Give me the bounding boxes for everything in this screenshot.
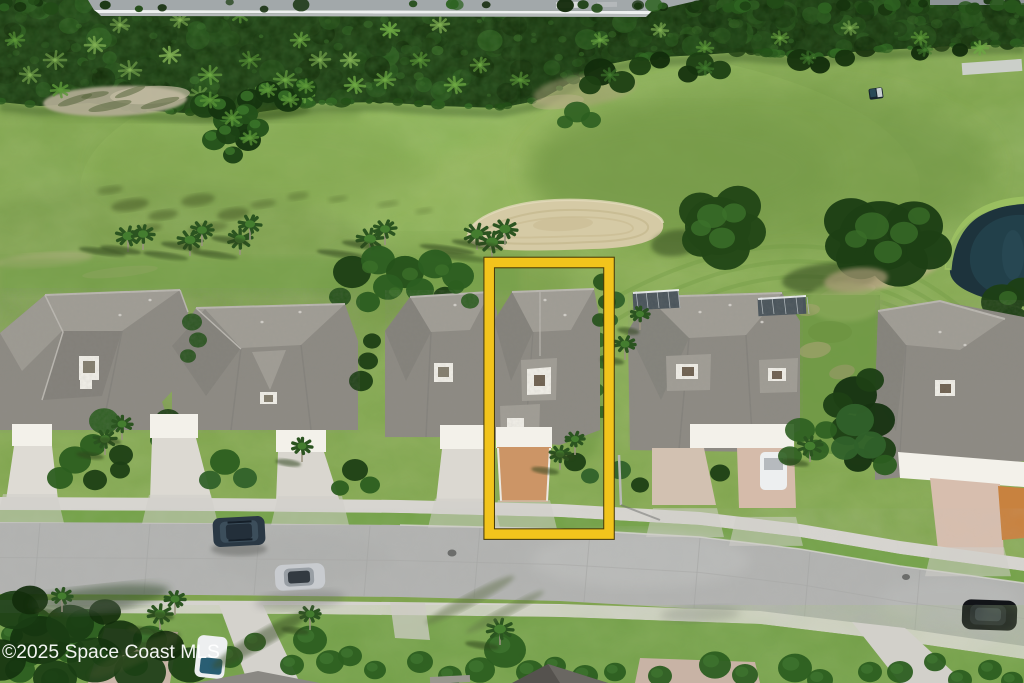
- svg-text:©2025 Space Coast MLS: ©2025 Space Coast MLS: [2, 642, 220, 663]
